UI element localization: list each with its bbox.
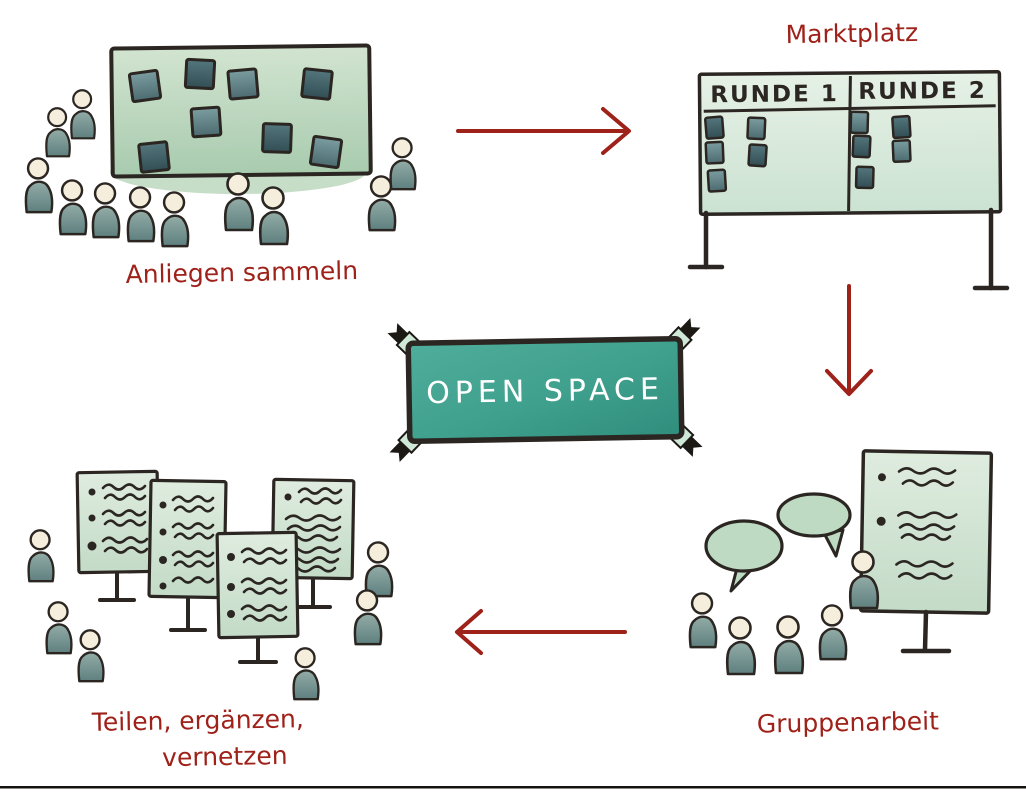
bullet-point xyxy=(89,489,96,496)
bullet-point xyxy=(227,553,235,561)
sticky-note xyxy=(129,70,161,102)
sticky-note xyxy=(263,124,292,153)
bullet-point xyxy=(159,556,167,564)
bullet-point xyxy=(160,583,167,590)
label-marktplatz: Marktplatz xyxy=(785,18,918,49)
sticky-note xyxy=(856,167,874,188)
sticky-note xyxy=(747,117,765,139)
sticky-note xyxy=(228,69,258,99)
bottom-divider xyxy=(0,786,1026,789)
person-figure xyxy=(128,187,154,241)
open-space-banner: OPEN SPACE xyxy=(386,316,704,463)
column-header-runde-2: RUNDE 2 xyxy=(858,78,987,105)
person-figure xyxy=(225,174,253,231)
scene-gruppenarbeit: Gruppenarbeit xyxy=(690,451,991,739)
person-figure xyxy=(690,593,716,647)
label-teilen-line1: Teilen, ergänzen, xyxy=(91,704,304,737)
sticky-note xyxy=(139,142,170,173)
sticky-note xyxy=(706,142,724,164)
sticky-note xyxy=(302,69,333,100)
person-figure xyxy=(775,617,803,674)
person-figure xyxy=(46,108,69,156)
person-figure xyxy=(355,590,381,644)
arrow-down-icon xyxy=(827,286,871,394)
diagram-canvas: Anliegen sammeln Marktplatz RUNDE 1 RUND… xyxy=(0,0,1026,795)
speech-bubble-icon xyxy=(778,494,850,556)
sticky-note xyxy=(185,59,214,88)
sticky-note xyxy=(851,112,869,133)
person-figure xyxy=(366,542,392,596)
arrow-left-icon xyxy=(457,611,625,653)
person-figure xyxy=(26,158,52,212)
bullet-point xyxy=(227,610,235,618)
label-gruppenarbeit: Gruppenarbeit xyxy=(757,706,940,738)
arrow-right-icon xyxy=(458,109,629,153)
sticky-note xyxy=(705,117,724,139)
sticky-note xyxy=(310,136,342,168)
sticky-note xyxy=(893,140,911,162)
person-figure xyxy=(162,192,188,246)
person-figure xyxy=(93,183,119,237)
person-figure xyxy=(60,180,86,234)
speech-bubble-icon xyxy=(706,521,782,591)
sticky-note xyxy=(708,170,726,192)
scene-teilen-vernetzen: Teilen, ergänzen, vernetzen xyxy=(29,471,393,772)
bullet-point xyxy=(285,494,292,501)
scene-anliegen-sammeln: Anliegen sammeln xyxy=(26,45,416,289)
person-figure xyxy=(47,602,72,653)
flipchart-stand xyxy=(903,612,949,651)
bullet-point xyxy=(227,583,235,591)
bullet-point xyxy=(160,502,167,509)
person-figure xyxy=(294,648,319,699)
flipchart xyxy=(77,471,159,600)
person-figure xyxy=(727,618,755,675)
person-figure xyxy=(820,605,846,659)
person-figure xyxy=(79,630,104,681)
bullet-point xyxy=(160,529,167,536)
person-figure xyxy=(29,530,54,581)
sticky-note xyxy=(191,107,221,137)
sticky-note xyxy=(748,144,766,166)
person-figure xyxy=(850,552,878,609)
board-legs xyxy=(690,210,1007,288)
person-figure xyxy=(391,138,416,189)
open-space-diagram: Anliegen sammeln Marktplatz RUNDE 1 RUND… xyxy=(0,0,1026,795)
person-figure xyxy=(71,90,94,138)
sticky-note xyxy=(853,136,871,158)
scene-marktplatz: Marktplatz RUNDE 1 RUNDE 2 xyxy=(690,18,1007,288)
flipchart xyxy=(149,480,226,630)
bullet-point xyxy=(88,542,97,551)
column-header-runde-1: RUNDE 1 xyxy=(710,81,839,108)
flipchart xyxy=(217,532,298,662)
label-anliegen-sammeln: Anliegen sammeln xyxy=(125,256,358,289)
sticky-note xyxy=(892,116,910,138)
person-figure xyxy=(260,188,288,245)
banner-text: OPEN SPACE xyxy=(426,372,664,411)
label-teilen-line2: vernetzen xyxy=(162,741,288,772)
bullet-point xyxy=(89,515,96,522)
